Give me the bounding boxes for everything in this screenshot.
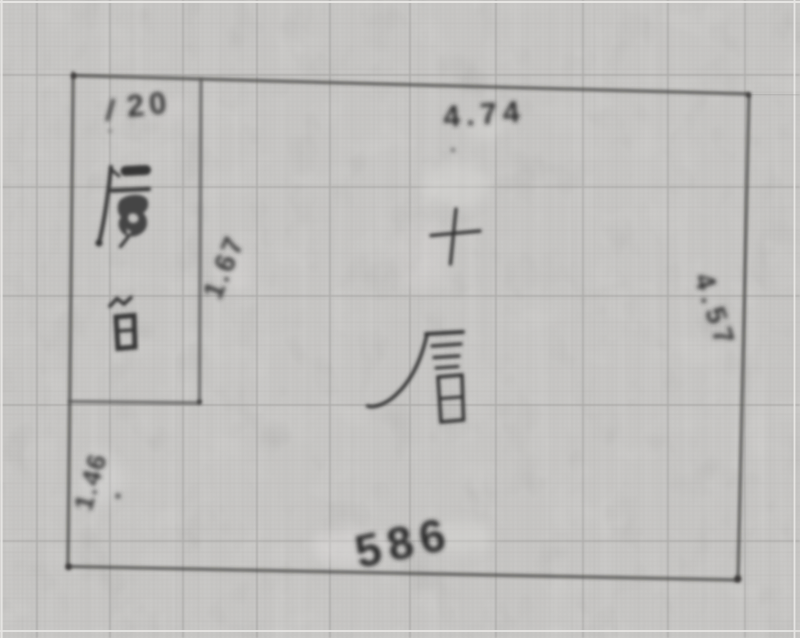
svg-text:4.74: 4.74	[442, 95, 526, 134]
svg-text:20: 20	[125, 85, 173, 124]
